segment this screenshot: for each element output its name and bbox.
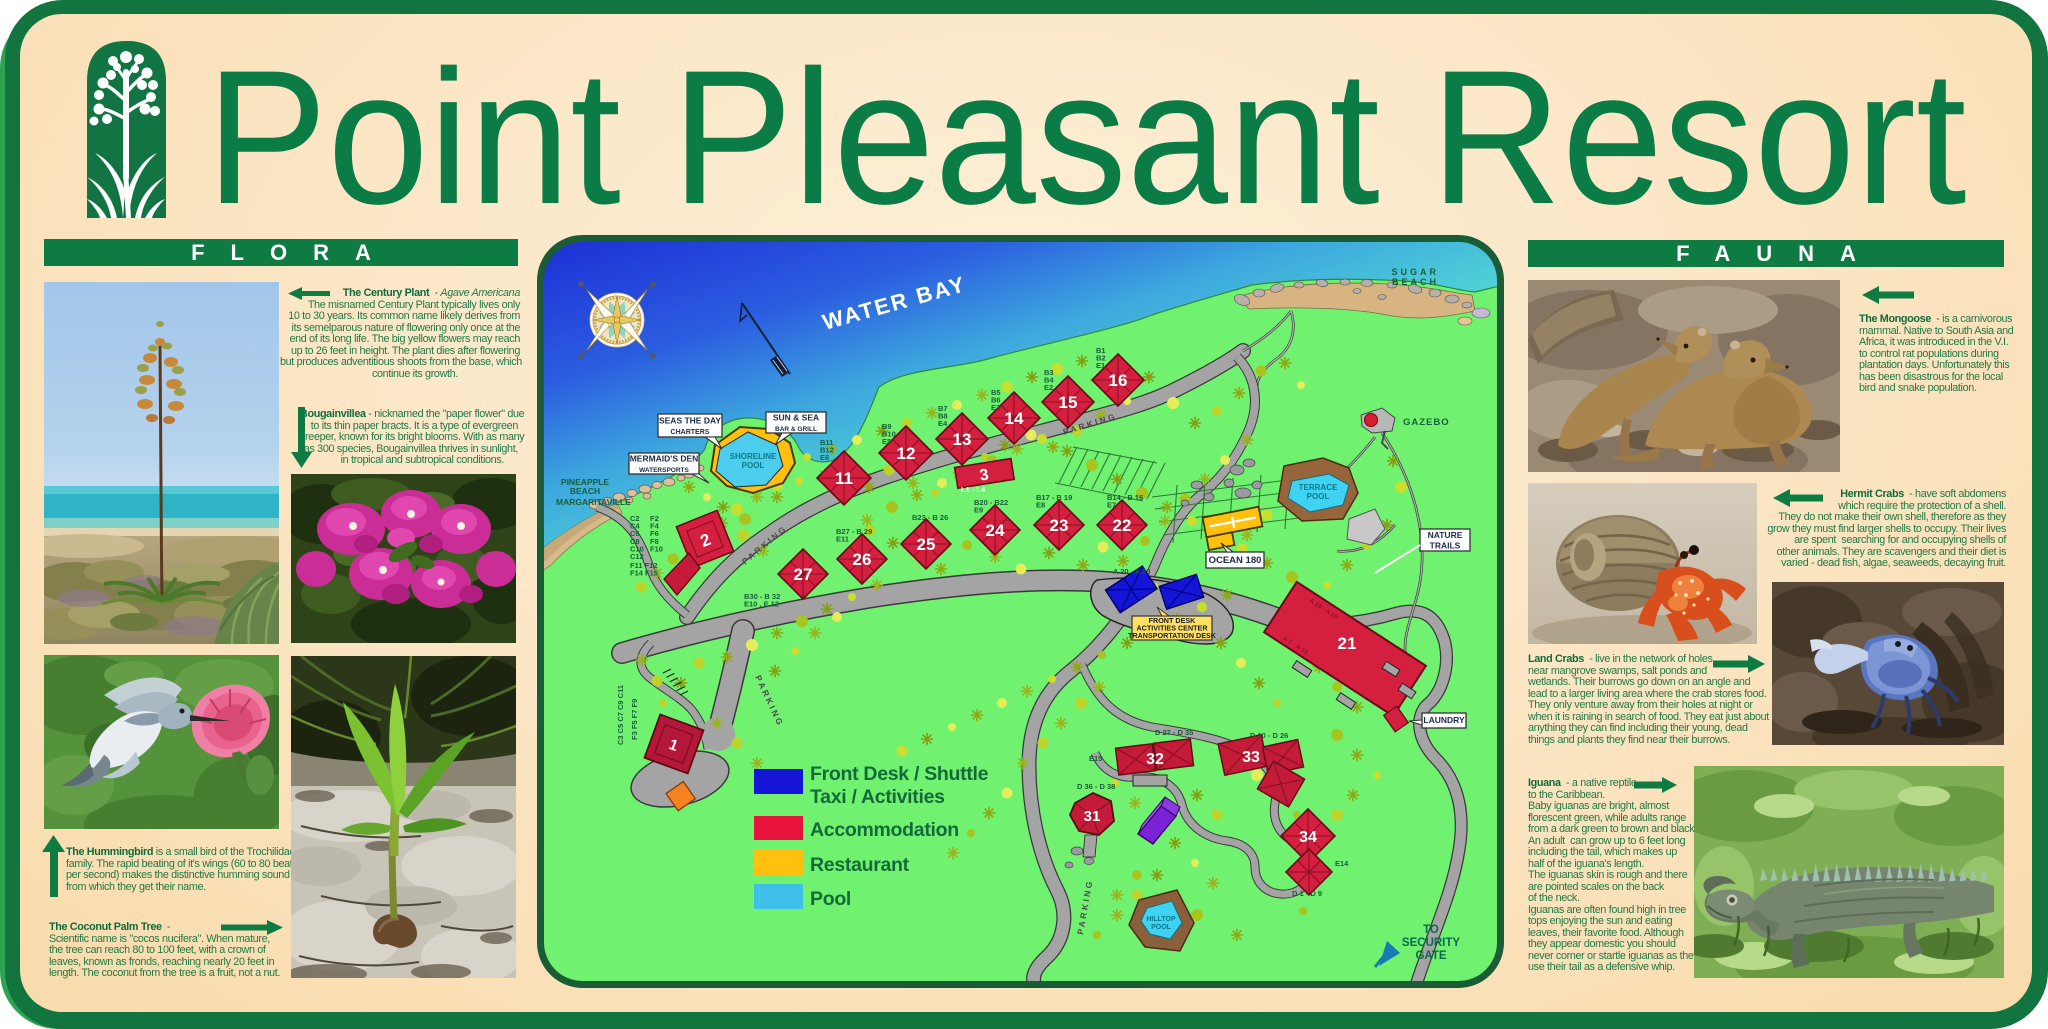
svg-text:WATERSPORTS: WATERSPORTS [639, 467, 689, 474]
svg-text:Restaurant: Restaurant [810, 854, 910, 876]
svg-text:23: 23 [1050, 516, 1069, 535]
svg-text:D 36 - D 38: D 36 - D 38 [1077, 782, 1115, 791]
svg-text:E10 , E 12: E10 , E 12 [744, 600, 779, 609]
svg-text:LAUNDRY: LAUNDRY [1423, 715, 1465, 725]
svg-text:SECURITY: SECURITY [1402, 937, 1460, 949]
svg-text:14: 14 [1005, 409, 1024, 428]
svg-text:POOL: POOL [742, 461, 765, 470]
svg-text:E15: E15 [1089, 754, 1102, 763]
svg-text:SHORELINE: SHORELINE [730, 452, 777, 461]
svg-text:SUN & SEA: SUN & SEA [773, 412, 819, 422]
svg-text:TERRACE: TERRACE [1299, 483, 1338, 492]
svg-text:GATE: GATE [1415, 950, 1446, 962]
svg-text:A 20 - A 23: A 20 - A 23 [1113, 567, 1151, 576]
svg-text:E7: E7 [1107, 501, 1116, 510]
svg-text:TO: TO [1423, 924, 1439, 936]
svg-text:Pool: Pool [810, 888, 851, 910]
svg-text:NATURE: NATURE [1428, 530, 1463, 540]
svg-text:Front Desk / Shuttle: Front Desk / Shuttle [810, 763, 989, 785]
svg-text:POOL: POOL [1151, 924, 1172, 931]
svg-text:F3 F5 F7 F9: F3 F5 F7 F9 [630, 699, 639, 740]
svg-text:L1 - L4: L1 - L4 [961, 485, 986, 494]
svg-text:22: 22 [1113, 516, 1132, 535]
svg-text:31: 31 [1084, 808, 1101, 825]
svg-text:CHARTERS: CHARTERS [671, 429, 710, 436]
svg-text:33: 33 [1242, 749, 1260, 766]
svg-text:E6: E6 [820, 453, 829, 462]
svg-text:BEACH: BEACH [570, 486, 600, 496]
svg-text:SEAS THE DAY: SEAS THE DAY [659, 415, 721, 425]
svg-text:E4: E4 [938, 419, 948, 428]
svg-text:D 27 - D 35: D 27 - D 35 [1155, 728, 1193, 737]
svg-text:E8: E8 [1036, 501, 1045, 510]
svg-text:16: 16 [1109, 371, 1128, 390]
svg-text:E2: E2 [1044, 383, 1053, 392]
svg-text:HILLTOP: HILLTOP [1146, 916, 1176, 923]
svg-text:24: 24 [986, 521, 1005, 540]
svg-text:27: 27 [794, 565, 813, 584]
svg-text:E1: E1 [1096, 361, 1105, 370]
svg-text:MARGARITAVILLE: MARGARITAVILLE [556, 497, 631, 507]
svg-text:C3 C5 C7 C9 C11: C3 C5 C7 C9 C11 [616, 685, 625, 745]
svg-text:E11: E11 [836, 535, 849, 544]
svg-text:TRANSPORTATION DESK: TRANSPORTATION DESK [1128, 631, 1217, 640]
svg-text:12: 12 [897, 444, 916, 463]
svg-text:SUGAR: SUGAR [1391, 267, 1439, 277]
svg-text:E5: E5 [882, 437, 891, 446]
svg-text:E3: E3 [991, 403, 1000, 412]
svg-text:BAR & GRILL: BAR & GRILL [775, 426, 817, 433]
svg-text:OCEAN 180: OCEAN 180 [1209, 555, 1262, 566]
svg-text:E14: E14 [1335, 859, 1349, 868]
svg-text:15: 15 [1059, 393, 1078, 412]
svg-text:13: 13 [953, 430, 972, 449]
svg-text:F14 F15: F14 F15 [630, 569, 658, 578]
svg-text:GAZEBO: GAZEBO [1403, 417, 1450, 428]
svg-text:25: 25 [917, 535, 936, 554]
svg-text:E9: E9 [974, 506, 983, 515]
svg-text:11: 11 [835, 469, 853, 488]
svg-text:TRAILS: TRAILS [1430, 541, 1461, 551]
svg-text:32: 32 [1146, 751, 1164, 768]
svg-text:D 1 - D 9: D 1 - D 9 [1292, 889, 1322, 898]
svg-text:34: 34 [1299, 829, 1317, 846]
svg-text:C12: C12 [630, 552, 644, 561]
svg-text:D 10 - D 26: D 10 - D 26 [1250, 731, 1288, 740]
svg-text:BEACH: BEACH [1392, 277, 1439, 287]
svg-text:26: 26 [853, 550, 872, 569]
svg-text:Accommodation: Accommodation [810, 819, 959, 841]
svg-text:POOL: POOL [1307, 492, 1330, 501]
svg-text:MERMAID'S DEN: MERMAID'S DEN [630, 453, 699, 463]
svg-text:F10: F10 [650, 544, 663, 553]
svg-text:B23 - B 26: B23 - B 26 [912, 513, 948, 522]
svg-text:Taxi / Activities: Taxi / Activities [810, 786, 945, 808]
svg-text:21: 21 [1338, 634, 1357, 653]
